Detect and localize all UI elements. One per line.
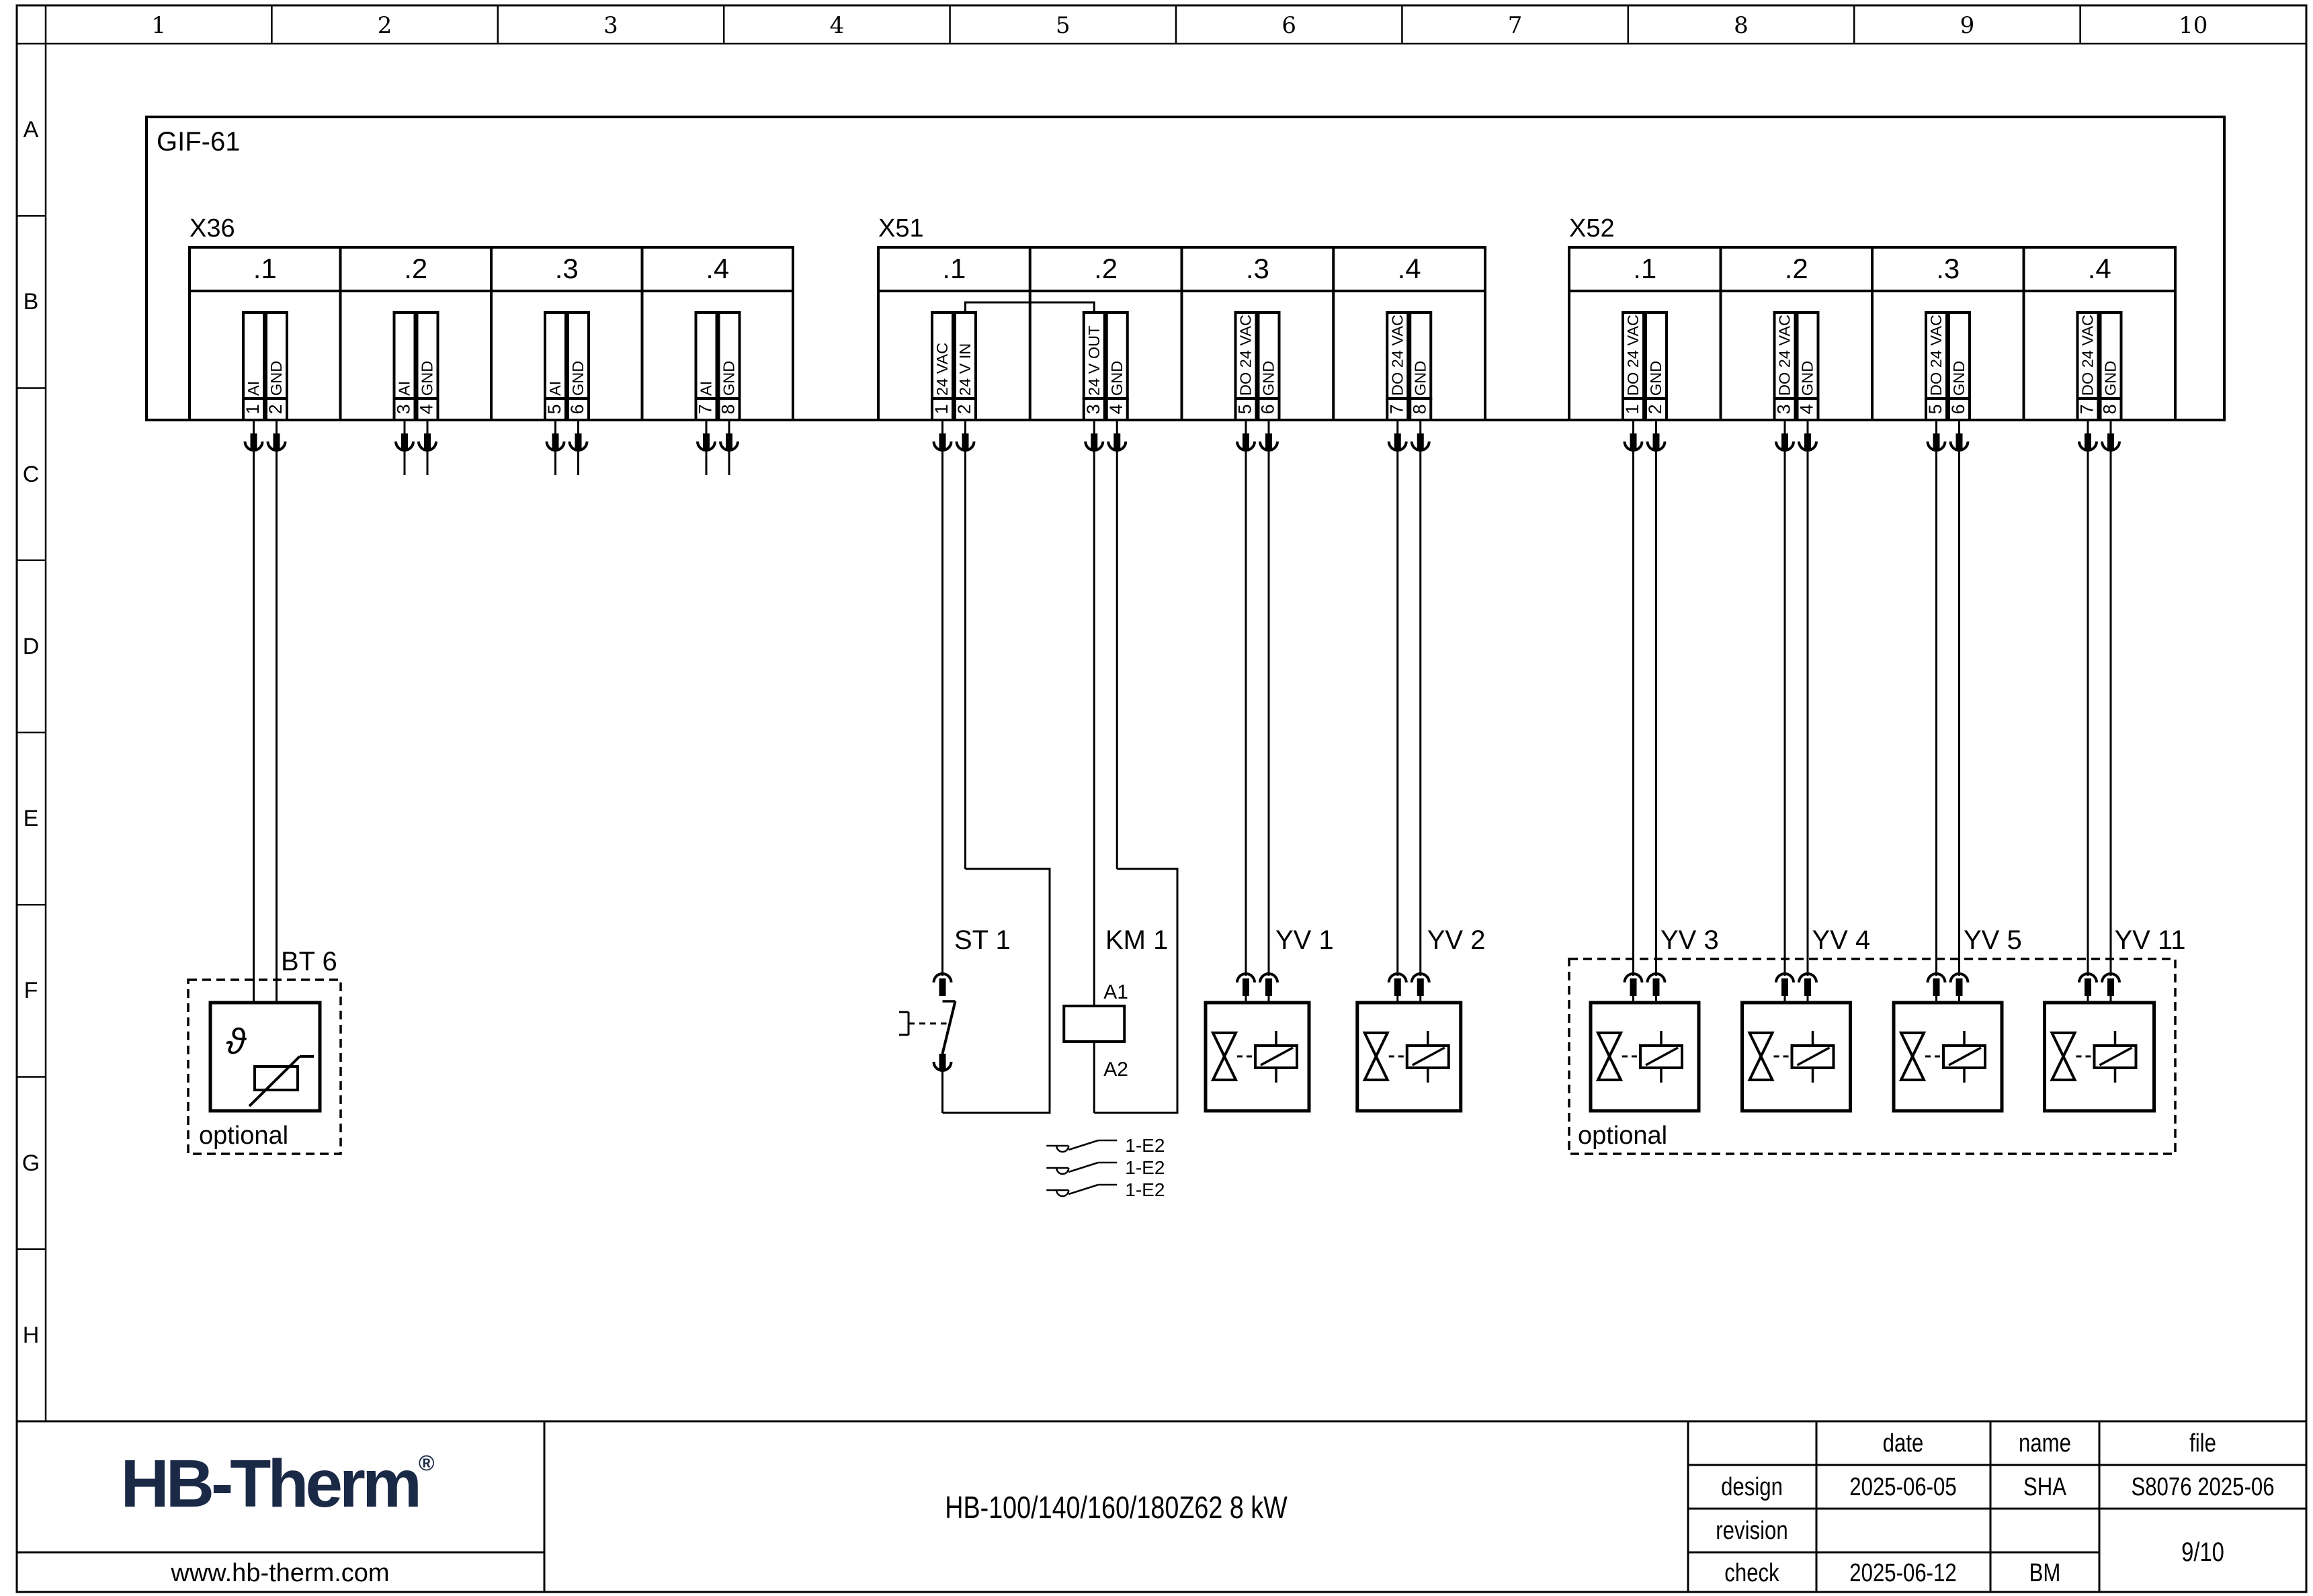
schematic-page: GIF-61X36.1AI1GND2.2AI3GND4.3AI5GND6.4AI… (0, 0, 2313, 1596)
grid-column-label: 1 (151, 14, 166, 37)
document-title: HB-100/140/160/180Z62 8 kW (945, 1492, 1288, 1523)
grid-row-label: G (22, 1152, 40, 1175)
grid-row-label: B (24, 290, 39, 313)
design-date: 2025-06-05 (1849, 1474, 1956, 1500)
grid-column-label: 10 (2179, 14, 2207, 37)
col-header-date: date (1883, 1431, 1924, 1456)
col-header-name: name (2019, 1431, 2071, 1456)
row-label-check: check (1724, 1560, 1779, 1586)
design-name: SHA (2023, 1474, 2066, 1500)
hb-therm-logo: HB-Therm® (121, 1450, 435, 1517)
grid-column-label: 7 (1508, 14, 1523, 37)
file-id: S8076 2025-06 (2131, 1474, 2274, 1500)
grid-row-label: A (24, 118, 39, 141)
grid-column-label: 2 (378, 14, 392, 37)
grid-row-label: E (24, 807, 39, 830)
grid-row-label: H (23, 1324, 40, 1347)
diagram-labels-layer: 12345678910ABCDEFGH (0, 0, 2313, 1596)
grid-column-label: 9 (1960, 14, 1975, 37)
page-number: 9/10 (2181, 1539, 2224, 1566)
grid-row-label: F (24, 979, 38, 1002)
grid-column-label: 4 (830, 14, 845, 37)
grid-column-label: 6 (1281, 14, 1296, 37)
registered-mark-icon: ® (419, 1451, 435, 1475)
check-date: 2025-06-12 (1849, 1560, 1956, 1586)
check-name: BM (2029, 1560, 2061, 1586)
website-url: www.hb-therm.com (171, 1560, 389, 1586)
grid-column-label: 5 (1056, 14, 1070, 37)
row-label-design: design (1721, 1474, 1783, 1500)
logo-text: HB-Therm (121, 1446, 419, 1521)
grid-row-label: D (23, 635, 40, 658)
grid-row-label: C (23, 463, 40, 486)
col-header-file: file (2189, 1431, 2216, 1456)
row-label-revision: revision (1716, 1518, 1788, 1544)
grid-column-label: 8 (1734, 14, 1749, 37)
grid-column-label: 3 (603, 14, 618, 37)
